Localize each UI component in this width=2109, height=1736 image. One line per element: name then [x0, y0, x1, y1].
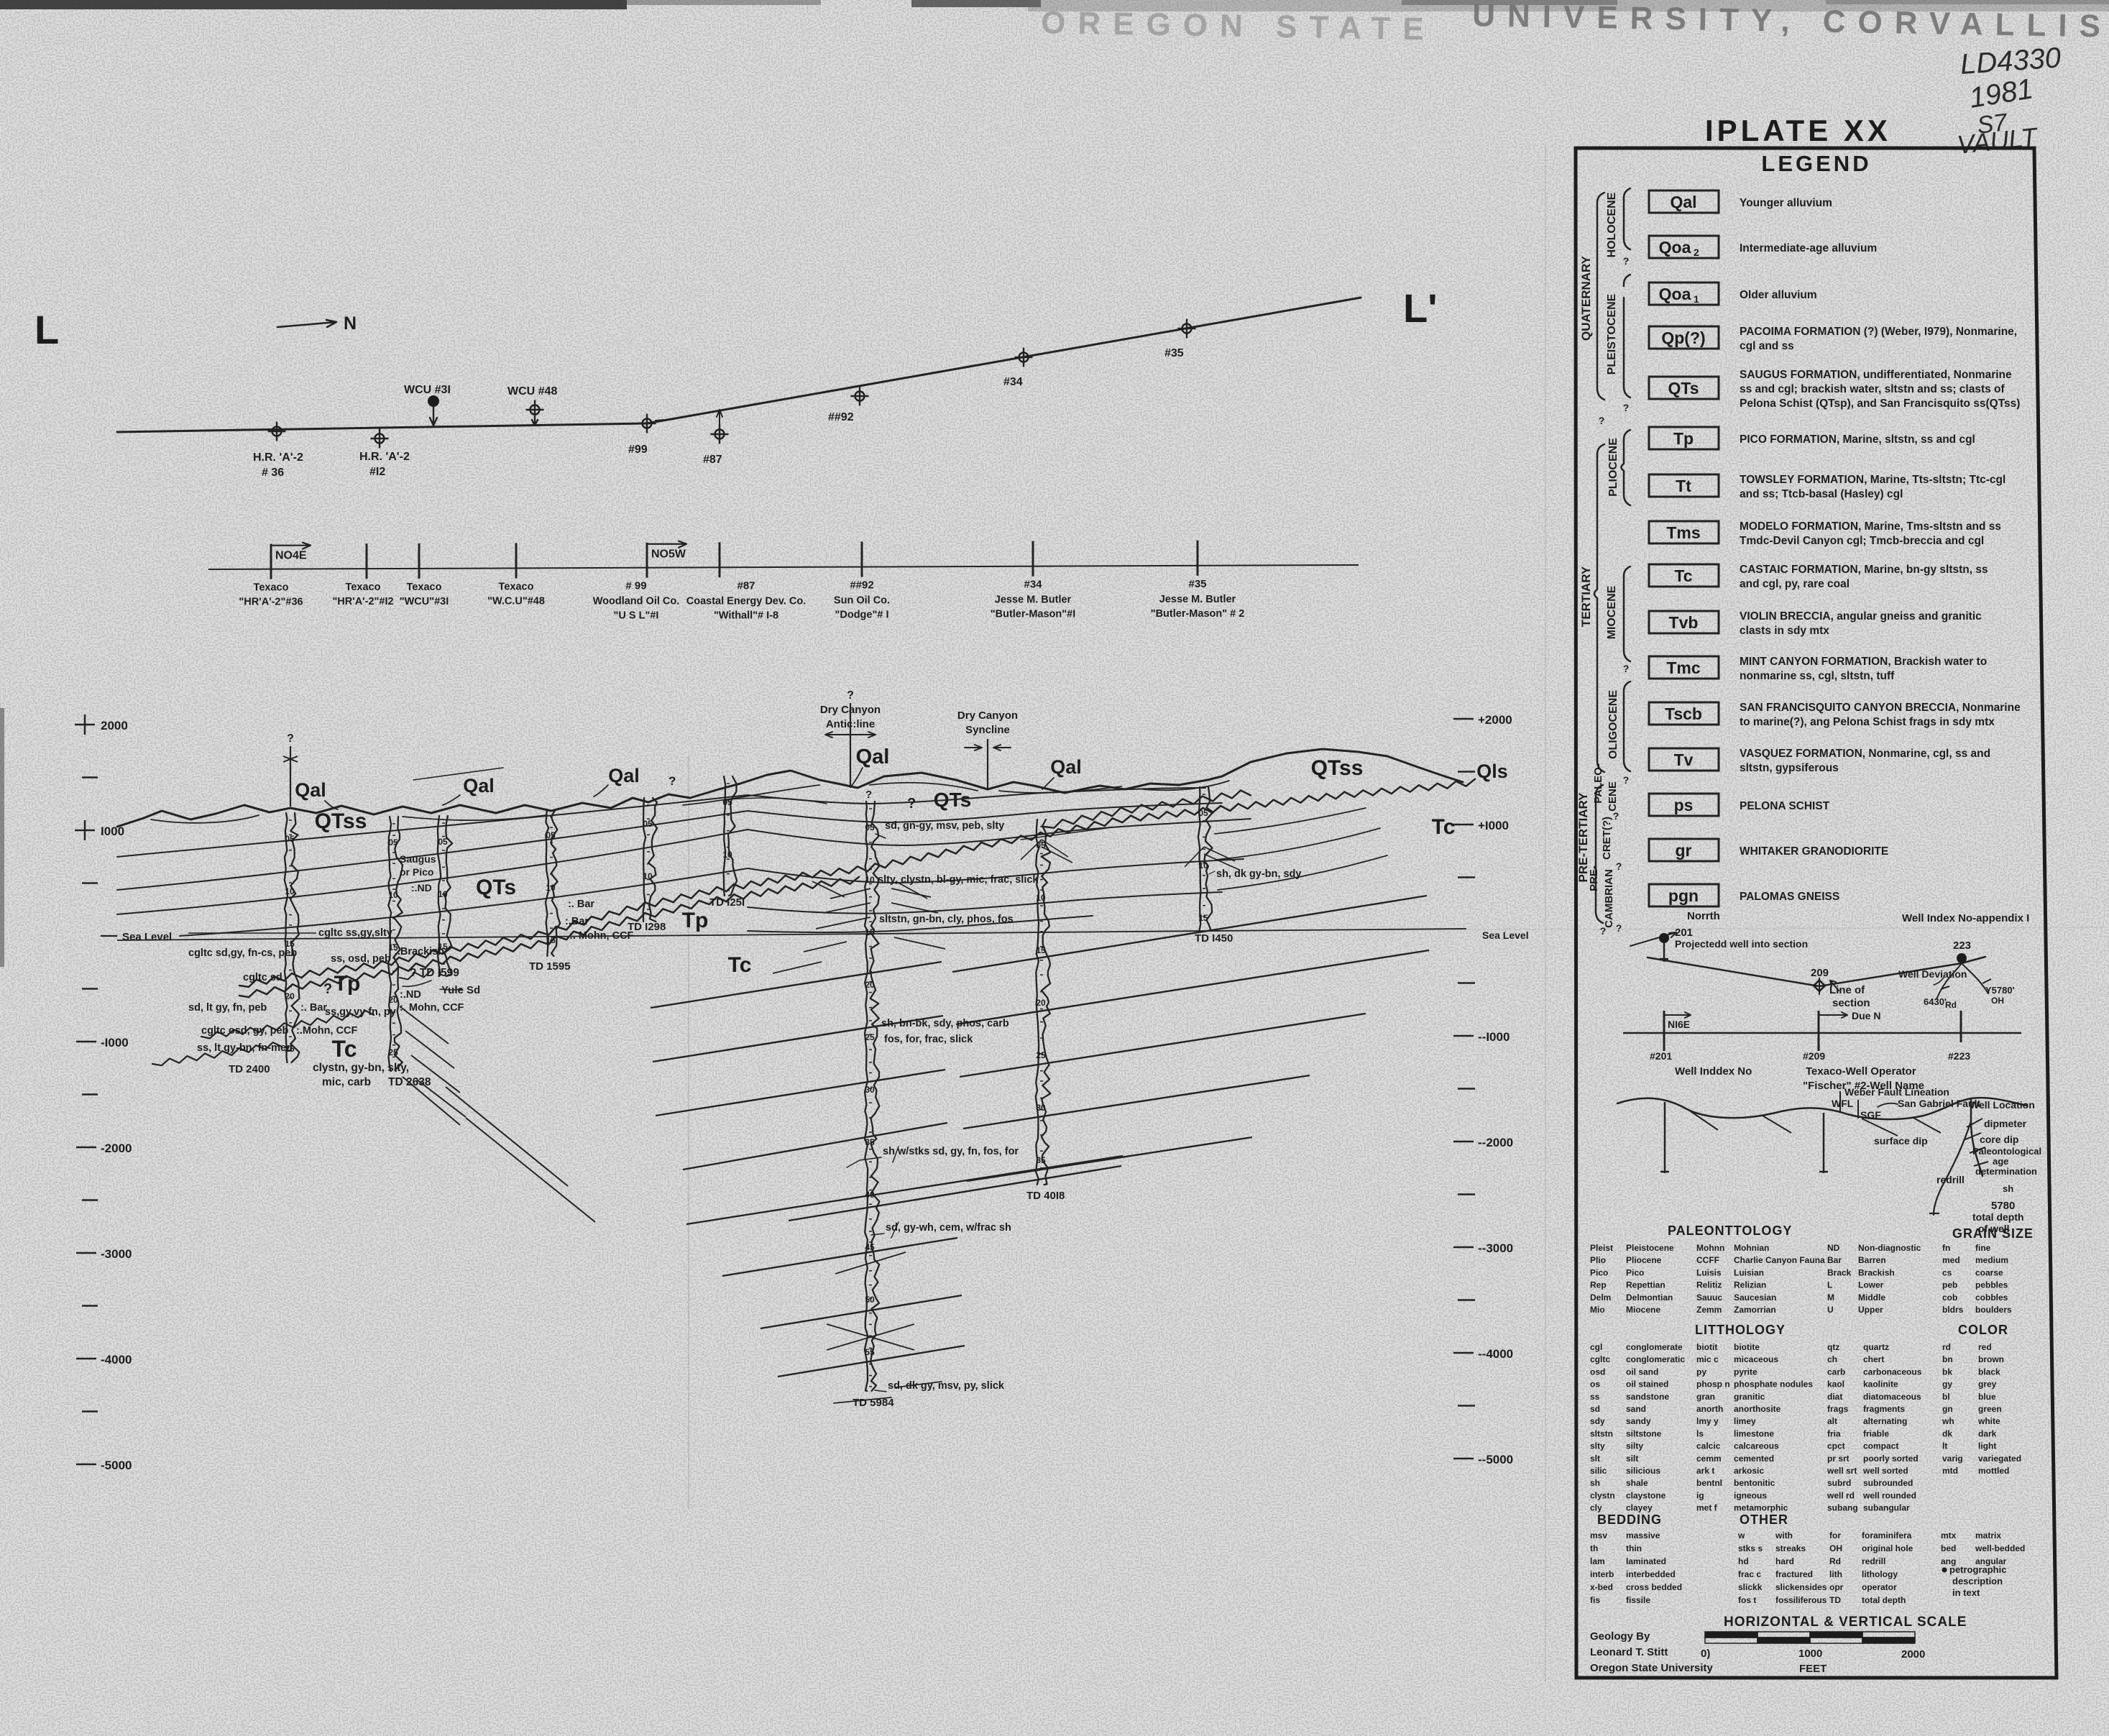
- svg-text:dark: dark: [1978, 1428, 1997, 1438]
- svg-text:-5000: -5000: [101, 1459, 132, 1472]
- svg-text:Sea Level: Sea Level: [122, 931, 172, 943]
- svg-text:Tp: Tp: [682, 909, 709, 932]
- svg-text:Pico: Pico: [1626, 1267, 1644, 1277]
- svg-text::. Bar: :. Bar: [568, 899, 594, 910]
- svg-text:Charlie Canyon Fauna: Charlie Canyon Fauna: [1734, 1255, 1825, 1265]
- svg-text:total depth: total depth: [1862, 1595, 1906, 1605]
- svg-text:Weber Fault Lineation: Weber Fault Lineation: [1844, 1086, 1949, 1098]
- svg-text:Tms: Tms: [1666, 523, 1700, 542]
- svg-text:TD 40I8: TD 40I8: [1026, 1190, 1065, 1202]
- svg-text:cemented: cemented: [1734, 1453, 1774, 1464]
- svg-text:Projectedd well into section: Projectedd well into section: [1675, 938, 1808, 950]
- svg-text:? TD I599: ? TD I599: [410, 967, 459, 979]
- svg-text:0): 0): [1701, 1648, 1710, 1660]
- svg-text:redrill: redrill: [1936, 1174, 1965, 1185]
- svg-text:QTs: QTs: [1668, 379, 1699, 398]
- svg-text:TOWSLEY FORMATION, Marine, Tts: TOWSLEY FORMATION, Marine, Tts-sltstn; T…: [1740, 474, 2005, 486]
- svg-text:cs: cs: [1942, 1267, 1952, 1277]
- svg-text:osd: osd: [1590, 1367, 1605, 1377]
- svg-text:Pleistocene: Pleistocene: [1626, 1243, 1674, 1253]
- svg-text:limey: limey: [1734, 1416, 1756, 1426]
- svg-text:gran: gran: [1696, 1392, 1715, 1402]
- svg-text:Qls: Qls: [1476, 761, 1508, 782]
- svg-text:to marine(?), ang Pelona Schis: to marine(?), ang Pelona Schist frags in…: [1740, 716, 1995, 728]
- svg-text:Well Index No-appendix I: Well Index No-appendix I: [1902, 912, 2029, 924]
- svg-text:cgl: cgl: [1590, 1342, 1602, 1352]
- svg-text:TD: TD: [1829, 1595, 1841, 1605]
- svg-text:med: med: [1942, 1255, 1960, 1265]
- svg-text:San Gabriel Fault: San Gabriel Fault: [1898, 1098, 1980, 1109]
- svg-text:OLIGOCENE: OLIGOCENE: [1607, 690, 1619, 759]
- svg-text:mic, carb: mic, carb: [322, 1076, 371, 1088]
- svg-text:well-bedded: well-bedded: [1975, 1543, 2025, 1553]
- svg-text:15: 15: [865, 927, 875, 937]
- svg-text::.Brackish: :.Brackish: [394, 946, 444, 957]
- svg-text:--2000: --2000: [1478, 1136, 1513, 1149]
- svg-text:cly: cly: [1590, 1503, 1602, 1513]
- svg-text:frags: frags: [1827, 1404, 1849, 1414]
- svg-text:boulders: boulders: [1975, 1305, 2012, 1315]
- svg-text:Dry Canyon: Dry Canyon: [957, 709, 1018, 722]
- svg-text:Norrth: Norrth: [1687, 910, 1720, 922]
- svg-text:OH: OH: [1829, 1543, 1842, 1553]
- svg-text:TD 2400: TD 2400: [229, 1063, 270, 1075]
- svg-text:Younger alluvium: Younger alluvium: [1740, 197, 1832, 209]
- svg-text:"Butler-Mason" # 2: "Butler-Mason" # 2: [1151, 608, 1245, 620]
- svg-text:10: 10: [722, 850, 732, 860]
- svg-text:#I2: #I2: [369, 466, 385, 478]
- svg-text:209: 209: [1811, 967, 1829, 979]
- svg-text:?: ?: [1623, 663, 1630, 674]
- svg-text:WHITAKER GRANODIORITE: WHITAKER GRANODIORITE: [1740, 845, 1888, 858]
- svg-text:bn: bn: [1942, 1354, 1953, 1364]
- svg-text:Rd: Rd: [1829, 1556, 1841, 1566]
- svg-text:th: th: [1590, 1543, 1598, 1553]
- svg-text:friable: friable: [1863, 1428, 1889, 1438]
- svg-text:PICO FORMATION, Marine, sltstn: PICO FORMATION, Marine, sltstn, ss and c…: [1740, 433, 1975, 446]
- svg-text:carb: carb: [1827, 1367, 1845, 1377]
- svg-text:clystn: clystn: [1590, 1490, 1615, 1500]
- svg-text:#99: #99: [628, 444, 648, 456]
- svg-text:PLEISTOCENE: PLEISTOCENE: [1606, 293, 1618, 375]
- svg-text:10: 10: [438, 889, 448, 899]
- svg-text:QTss: QTss: [1311, 756, 1364, 780]
- svg-text:bk: bk: [1942, 1367, 1952, 1377]
- svg-text:HORIZONTAL & VERTICAL SCALE: HORIZONTAL & VERTICAL SCALE: [1724, 1615, 1967, 1630]
- svg-text::. Mohn, CCF: :. Mohn, CCF: [569, 930, 634, 942]
- svg-text:?: ?: [1600, 925, 1607, 937]
- svg-text:met f: met f: [1696, 1503, 1718, 1513]
- svg-text:medium: medium: [1975, 1255, 2008, 1265]
- svg-text:light: light: [1978, 1441, 1996, 1451]
- svg-text:sd: sd: [1590, 1404, 1600, 1414]
- svg-text:Qal: Qal: [1050, 756, 1082, 778]
- svg-text:GRAIN SIZE: GRAIN SIZE: [1952, 1226, 2034, 1241]
- svg-text:anorthosite: anorthosite: [1734, 1404, 1781, 1414]
- svg-text:ss,gy,vy fn, py: ss,gy,vy fn, py: [325, 1006, 396, 1018]
- svg-text:--4000: --4000: [1478, 1347, 1513, 1361]
- svg-text:#201: #201: [1650, 1050, 1672, 1062]
- svg-text:Tc: Tc: [1432, 815, 1456, 839]
- svg-text:PALEO-: PALEO-: [1592, 763, 1604, 804]
- svg-text:quartz: quartz: [1863, 1342, 1889, 1352]
- svg-text:sltstn: sltstn: [1590, 1428, 1613, 1438]
- svg-text:diat: diat: [1827, 1392, 1842, 1402]
- svg-text:biotite: biotite: [1734, 1342, 1760, 1352]
- svg-text:blue: blue: [1978, 1392, 1996, 1402]
- svg-text:Qoa: Qoa: [1659, 238, 1691, 257]
- svg-text:cgltc ss,gy,slty: cgltc ss,gy,slty: [318, 927, 392, 939]
- svg-text:wh: wh: [1942, 1416, 1954, 1426]
- svg-text:CRET(?): CRET(?): [1601, 817, 1613, 860]
- svg-text:Woodland Oil Co.: Woodland Oil Co.: [593, 596, 680, 607]
- svg-text:ls: ls: [1696, 1428, 1704, 1438]
- svg-text:pyrite: pyrite: [1734, 1367, 1757, 1377]
- svg-text:2: 2: [1694, 247, 1699, 258]
- svg-text:55: 55: [865, 1347, 875, 1357]
- svg-text:#87: #87: [703, 454, 722, 466]
- svg-text:10: 10: [1198, 860, 1208, 871]
- svg-text:micaceous: micaceous: [1734, 1354, 1778, 1364]
- svg-text:MIOCENE: MIOCENE: [1606, 585, 1618, 639]
- svg-text:TD I450: TD I450: [1195, 932, 1233, 945]
- svg-text:grey: grey: [1978, 1379, 1997, 1390]
- svg-text:WFL: WFL: [1832, 1098, 1854, 1109]
- svg-text:matrix: matrix: [1975, 1530, 2001, 1540]
- svg-text:Upper: Upper: [1858, 1305, 1883, 1315]
- svg-text:core dip: core dip: [1980, 1134, 2018, 1145]
- svg-text:TD 1595: TD 1595: [529, 960, 571, 973]
- svg-text:cgltc sd: cgltc sd: [243, 972, 282, 983]
- svg-text:fine: fine: [1975, 1243, 1991, 1253]
- svg-text:PACOIMA FORMATION (?) (Weber,: PACOIMA FORMATION (?) (Weber, I979), Non…: [1740, 326, 2017, 338]
- svg-text:silicious: silicious: [1626, 1466, 1660, 1476]
- svg-text:pgn: pgn: [1668, 886, 1699, 905]
- svg-text:Mohnn: Mohnn: [1696, 1243, 1724, 1253]
- svg-text:#34: #34: [1003, 376, 1023, 388]
- svg-text:20: 20: [1036, 998, 1046, 1008]
- svg-text:Repettian: Repettian: [1626, 1280, 1665, 1290]
- svg-text:red: red: [1978, 1342, 1992, 1352]
- svg-text:Coastal Energy Dev. Co.: Coastal Energy Dev. Co.: [686, 595, 807, 607]
- svg-text:Qal: Qal: [856, 745, 890, 768]
- svg-text::.Mohn, CCF: :.Mohn, CCF: [296, 1025, 358, 1037]
- svg-text:Well Location: Well Location: [1970, 1099, 2035, 1111]
- svg-text:05: 05: [1036, 840, 1046, 850]
- svg-text:compact: compact: [1863, 1441, 1898, 1451]
- svg-text:Relizian: Relizian: [1734, 1280, 1766, 1290]
- svg-text:varig: varig: [1942, 1453, 1963, 1464]
- svg-text:variegated: variegated: [1978, 1453, 2021, 1464]
- svg-text:COLOR: COLOR: [1958, 1323, 2008, 1337]
- svg-text:sandy: sandy: [1626, 1416, 1651, 1426]
- svg-text:Jesse M. Butler: Jesse M. Butler: [1159, 594, 1236, 605]
- svg-text:SAUGUS FORMATION, undifferent: SAUGUS FORMATION, undifferentiated, Nonm…: [1740, 369, 2012, 381]
- svg-text:Zemm: Zemm: [1696, 1305, 1722, 1315]
- svg-text:15: 15: [1036, 945, 1046, 955]
- svg-text:for: for: [1829, 1530, 1841, 1540]
- svg-text:coarse: coarse: [1975, 1267, 2003, 1277]
- svg-text:peb: peb: [1942, 1280, 1957, 1290]
- svg-text:Brack: Brack: [1827, 1267, 1852, 1277]
- svg-text:clayey: clayey: [1626, 1503, 1653, 1513]
- svg-text:fn: fn: [1942, 1243, 1950, 1253]
- svg-text:nonmarine ss, cgl, sltstn, tuf: nonmarine ss, cgl, sltstn, tuff: [1740, 670, 1895, 682]
- svg-text:VASQUEZ FORMATION, Nonmarine,: VASQUEZ FORMATION, Nonmarine, cgl, ss an…: [1740, 748, 1990, 760]
- svg-text:and ss; Ttcb-basal (Hasley) cg: and ss; Ttcb-basal (Hasley) cgl: [1740, 488, 1903, 500]
- svg-text:cob: cob: [1942, 1292, 1957, 1303]
- svg-text:35: 35: [1036, 1155, 1046, 1165]
- svg-text:x-bed: x-bed: [1590, 1582, 1613, 1592]
- svg-text:N: N: [344, 313, 357, 334]
- svg-text:cobbles: cobbles: [1975, 1292, 2008, 1303]
- svg-text:05: 05: [1198, 808, 1208, 818]
- svg-text:slt: slt: [1590, 1453, 1600, 1464]
- svg-text:silt: silt: [1626, 1453, 1638, 1464]
- svg-text:"WCU"#3I: "WCU"#3I: [400, 596, 449, 607]
- svg-text:silic: silic: [1590, 1466, 1607, 1476]
- svg-text:kaol: kaol: [1827, 1379, 1844, 1390]
- svg-text:sandstone: sandstone: [1626, 1392, 1669, 1402]
- svg-text:brown: brown: [1978, 1354, 2004, 1364]
- svg-text:Saugus: Saugus: [400, 853, 436, 865]
- svg-text:msv: msv: [1590, 1530, 1607, 1540]
- svg-text:-I000: -I000: [101, 1036, 129, 1050]
- svg-text:sd, gn-gy, msv, peb, slty: sd, gn-gy, msv, peb, slty: [885, 820, 1004, 832]
- svg-text:Qal: Qal: [608, 765, 640, 786]
- svg-text:interbedded: interbedded: [1626, 1569, 1676, 1579]
- svg-text:sh: sh: [2003, 1183, 2013, 1194]
- svg-text:?: ?: [1616, 922, 1622, 934]
- svg-text:gy: gy: [1942, 1379, 1952, 1390]
- svg-text:10: 10: [1036, 893, 1046, 903]
- svg-text:Intermediate-age alluvium: Intermediate-age alluvium: [1740, 242, 1877, 254]
- svg-text:OH: OH: [1991, 996, 2004, 1006]
- svg-text:fragments: fragments: [1863, 1404, 1905, 1414]
- svg-text:Qp(?): Qp(?): [1661, 329, 1705, 347]
- svg-text:Tc: Tc: [1674, 566, 1692, 585]
- svg-text:Leonard T. Stitt: Leonard T. Stitt: [1590, 1646, 1668, 1658]
- svg-text:?: ?: [1623, 255, 1630, 267]
- svg-text:CCFF: CCFF: [1696, 1255, 1719, 1265]
- svg-text:WCU #48: WCU #48: [507, 385, 557, 398]
- svg-text:OREGON STATE: OREGON STATE: [1041, 5, 1436, 47]
- svg-text:?: ?: [907, 796, 916, 812]
- svg-text::. Bar: :. Bar: [300, 1002, 327, 1014]
- svg-text:ig: ig: [1696, 1490, 1704, 1500]
- svg-text:QTss: QTss: [315, 809, 367, 833]
- svg-text:Lower: Lower: [1858, 1280, 1884, 1290]
- svg-text:TD I25I: TD I25I: [709, 896, 745, 909]
- svg-text:Well Inddex No: Well Inddex No: [1675, 1065, 1752, 1078]
- svg-text:Texaco: Texaco: [254, 582, 289, 594]
- svg-text:#34: #34: [1024, 579, 1042, 591]
- svg-text:##92: ##92: [850, 579, 873, 592]
- svg-text:calcareous: calcareous: [1734, 1441, 1779, 1451]
- svg-text:conglomerate: conglomerate: [1626, 1342, 1683, 1352]
- svg-text:bed: bed: [1941, 1543, 1956, 1553]
- svg-text:WCU #3I: WCU #3I: [404, 384, 451, 396]
- svg-text:cgl and ss: cgl and ss: [1740, 340, 1794, 352]
- svg-text:L: L: [1827, 1280, 1832, 1290]
- svg-text:"Dodge"# I: "Dodge"# I: [835, 610, 889, 621]
- svg-text:# 99: # 99: [625, 580, 646, 592]
- svg-text:py: py: [1696, 1367, 1706, 1377]
- svg-text:Syncline: Syncline: [965, 724, 1010, 736]
- svg-text:frac c: frac c: [1738, 1569, 1761, 1579]
- svg-text:05: 05: [546, 830, 556, 840]
- svg-text:6430': 6430': [1924, 996, 1947, 1007]
- svg-text:H.R. 'A'-2: H.R. 'A'-2: [359, 451, 410, 463]
- svg-text:sdy: sdy: [1590, 1416, 1605, 1426]
- svg-text:-4000: -4000: [101, 1353, 132, 1367]
- svg-text:"Butler-Mason"#I: "Butler-Mason"#I: [991, 609, 1076, 620]
- svg-text:35: 35: [865, 1137, 875, 1147]
- svg-text:rd: rd: [1942, 1342, 1951, 1352]
- svg-text:Mio: Mio: [1590, 1305, 1605, 1315]
- svg-text:dk: dk: [1942, 1428, 1952, 1438]
- svg-text:lithology: lithology: [1862, 1569, 1898, 1579]
- svg-text:?: ?: [668, 774, 676, 788]
- svg-text:05: 05: [438, 837, 448, 847]
- svg-text:Pleist: Pleist: [1590, 1243, 1613, 1253]
- svg-text:total depth: total depth: [1972, 1211, 2024, 1223]
- svg-text:redrill: redrill: [1862, 1556, 1885, 1566]
- svg-text:Tmdc-Devil Canyon cgl; Tmcb-br: Tmdc-Devil Canyon cgl; Tmcb-breccia and …: [1740, 535, 1984, 547]
- svg-text:Tp: Tp: [1673, 429, 1694, 448]
- svg-text:PRE-: PRE-: [1588, 865, 1600, 891]
- svg-text:claystone: claystone: [1626, 1490, 1666, 1500]
- svg-text:Pico: Pico: [1590, 1267, 1608, 1277]
- svg-text:05: 05: [722, 797, 732, 807]
- svg-text:Qoa: Qoa: [1659, 285, 1691, 303]
- svg-text:Geology By: Geology By: [1590, 1630, 1650, 1643]
- svg-text:Y5780': Y5780': [1985, 985, 2015, 996]
- svg-text:NO4E: NO4E: [275, 550, 307, 562]
- svg-text:calcic: calcic: [1696, 1441, 1721, 1451]
- svg-text:slty, clystn, bl-gy, mic, frac: slty, clystn, bl-gy, mic, frac, slick: [878, 874, 1039, 886]
- svg-text:bldrs: bldrs: [1942, 1305, 1964, 1315]
- svg-text:Delmontian: Delmontian: [1626, 1292, 1673, 1303]
- svg-text:NO5W: NO5W: [651, 548, 686, 561]
- svg-text:stks s: stks s: [1738, 1543, 1763, 1553]
- svg-text:cpct: cpct: [1827, 1441, 1845, 1451]
- svg-text:LITTHOLOGY: LITTHOLOGY: [1695, 1323, 1786, 1337]
- svg-text:Texaco: Texaco: [499, 581, 534, 592]
- svg-text:"Withall"# I-8: "Withall"# I-8: [714, 610, 778, 621]
- svg-text:shale: shale: [1626, 1478, 1648, 1488]
- svg-text:2000: 2000: [101, 719, 128, 732]
- svg-text:age: age: [1993, 1156, 2008, 1167]
- svg-text:lith: lith: [1829, 1569, 1842, 1579]
- svg-text:fria: fria: [1827, 1428, 1841, 1438]
- svg-text:?: ?: [1623, 774, 1630, 786]
- svg-text:10: 10: [285, 886, 295, 896]
- svg-text:Middle: Middle: [1858, 1292, 1885, 1303]
- svg-text:section: section: [1832, 997, 1870, 1009]
- svg-text:M: M: [1827, 1292, 1834, 1303]
- svg-text:-3000: -3000: [101, 1247, 132, 1261]
- svg-text::.ND: :.ND: [411, 882, 432, 894]
- svg-text:slty: slty: [1590, 1441, 1605, 1451]
- svg-text:conglomeratic: conglomeratic: [1626, 1354, 1685, 1364]
- svg-text:subangular: subangular: [1863, 1503, 1910, 1513]
- svg-text:LEGEND: LEGEND: [1761, 151, 1871, 176]
- svg-text:30: 30: [865, 1085, 875, 1095]
- svg-text:granitic: granitic: [1734, 1392, 1765, 1402]
- svg-text::.ND: :.ND: [400, 989, 421, 1001]
- svg-text:Tscb: Tscb: [1665, 704, 1702, 723]
- svg-text:1000: 1000: [1798, 1648, 1822, 1660]
- svg-text:45: 45: [865, 1242, 875, 1252]
- svg-text:# 36: # 36: [262, 467, 284, 479]
- svg-text:?: ?: [1616, 860, 1622, 872]
- svg-text:mic c: mic c: [1696, 1354, 1719, 1364]
- svg-text:arkosic: arkosic: [1734, 1466, 1764, 1476]
- svg-text:15: 15: [546, 935, 556, 945]
- svg-text:#223: #223: [1948, 1050, 1970, 1062]
- svg-text:w: w: [1737, 1530, 1745, 1540]
- svg-text:Relitiz: Relitiz: [1696, 1280, 1722, 1290]
- svg-text:Jesse M. Butler: Jesse M. Butler: [995, 594, 1072, 606]
- svg-text:05: 05: [643, 819, 653, 829]
- svg-text:oil stained: oil stained: [1626, 1379, 1668, 1390]
- svg-text:alt: alt: [1827, 1416, 1837, 1426]
- svg-text:green: green: [1978, 1404, 2002, 1414]
- svg-text:Sauuc: Sauuc: [1696, 1292, 1722, 1303]
- svg-text:silty: silty: [1626, 1441, 1643, 1451]
- svg-text:FEET: FEET: [1799, 1663, 1827, 1675]
- svg-text:CAMBRIAN: CAMBRIAN: [1603, 869, 1615, 928]
- svg-text:--3000: --3000: [1478, 1241, 1513, 1255]
- svg-text:sh, bn-bk, sdy, phos, carb: sh, bn-bk, sdy, phos, carb: [881, 1018, 1009, 1029]
- svg-text:clystn, gy-bn, slty,: clystn, gy-bn, slty,: [313, 1062, 409, 1074]
- svg-text:Tc: Tc: [332, 1036, 357, 1062]
- svg-text:MODELO FORMATION, Marine, Tms-: MODELO FORMATION, Marine, Tms-sltstn and…: [1740, 520, 2001, 533]
- svg-text:Mohnian: Mohnian: [1734, 1243, 1769, 1253]
- svg-text:or Pico: or Pico: [400, 866, 433, 878]
- svg-text:Pliocene: Pliocene: [1626, 1255, 1662, 1265]
- svg-text:biotit: biotit: [1696, 1342, 1717, 1352]
- svg-text:bl: bl: [1942, 1392, 1950, 1402]
- svg-text:ps: ps: [1674, 796, 1694, 814]
- svg-text:ss: ss: [1590, 1392, 1600, 1402]
- svg-text:Sun Oil Co.: Sun Oil Co.: [834, 595, 890, 607]
- svg-text:Rep: Rep: [1590, 1280, 1607, 1290]
- svg-text:opr: opr: [1829, 1582, 1844, 1592]
- svg-text:subrd: subrd: [1827, 1478, 1851, 1488]
- svg-text:ark t: ark t: [1696, 1466, 1714, 1476]
- svg-text:ND: ND: [1827, 1243, 1840, 1253]
- svg-text:25: 25: [865, 1032, 875, 1042]
- svg-text:?: ?: [865, 789, 872, 801]
- svg-text:determination: determination: [1975, 1166, 2037, 1177]
- svg-text:Luisian: Luisian: [1734, 1267, 1764, 1277]
- svg-text:Tt: Tt: [1676, 477, 1691, 495]
- svg-text:anorth: anorth: [1696, 1404, 1723, 1414]
- svg-text:30: 30: [1036, 1103, 1046, 1113]
- svg-text:Paleontological: Paleontological: [1972, 1146, 2041, 1157]
- svg-text:TERTIARY: TERTIARY: [1579, 566, 1593, 627]
- svg-text:Sea Level: Sea Level: [1482, 929, 1529, 941]
- svg-text:cemm: cemm: [1696, 1453, 1722, 1464]
- svg-text:Non-diagnostic: Non-diagnostic: [1858, 1243, 1921, 1253]
- svg-text:sand: sand: [1626, 1404, 1646, 1414]
- svg-text:05: 05: [285, 834, 295, 844]
- svg-text:CENE: CENE: [1607, 781, 1619, 812]
- svg-text:poorly sorted: poorly sorted: [1863, 1453, 1919, 1464]
- svg-text:?: ?: [323, 981, 332, 997]
